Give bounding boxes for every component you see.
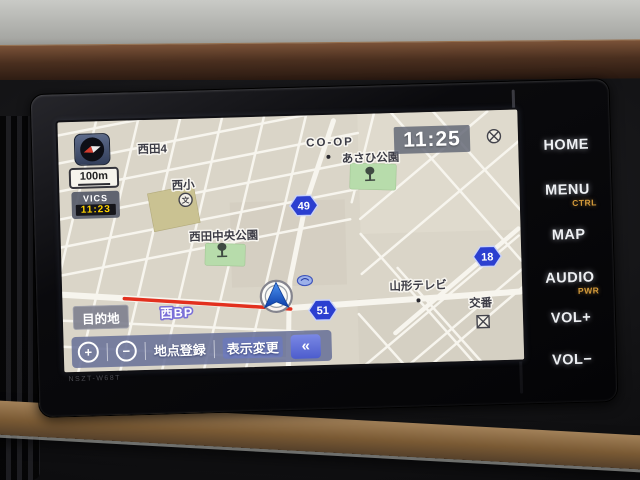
change-display-button[interactable]: 表示変更: [222, 336, 283, 359]
school-icon: 文: [179, 193, 192, 206]
volume-down-button-label: VOL−: [552, 352, 593, 369]
toolbar-divider: [107, 343, 109, 361]
poi-oval-icon: [297, 275, 312, 285]
volume-down-button[interactable]: VOL−: [530, 350, 614, 369]
map-block-shade: [230, 199, 347, 287]
compass-orientation-button[interactable]: [74, 133, 111, 166]
map-label-nishi-elementary: 西小: [171, 178, 195, 193]
navigation-head-unit: 文 49: [30, 78, 619, 418]
navigation-touchscreen[interactable]: 文 49: [55, 107, 526, 374]
wood-trim-top: [0, 39, 640, 84]
audio-button-sublabel: PWR: [528, 285, 612, 297]
menu-button-sublabel: CTRL: [526, 197, 610, 209]
menu-button[interactable]: MENU CTRL: [525, 180, 610, 209]
map-scale-value: 100m: [78, 170, 111, 185]
zoom-in-button[interactable]: +: [78, 341, 100, 363]
svg-text:49: 49: [298, 200, 311, 212]
compass-dial: [80, 137, 105, 162]
vics-timestamp: 11:23: [76, 204, 116, 216]
map-block-shade: [357, 294, 524, 364]
asahi-park-area: [350, 163, 397, 190]
svg-text:51: 51: [316, 305, 329, 317]
toolbar-divider: [214, 340, 216, 358]
svg-text:18: 18: [481, 251, 494, 263]
car-dashboard-photo: 文 49: [0, 0, 640, 480]
police-station-icon: [487, 130, 500, 143]
koban-icon: [477, 315, 489, 327]
map-label-road-name: 西BP: [160, 306, 193, 321]
menu-button-label: MENU: [545, 182, 590, 199]
map-label-koban: 交番: [469, 295, 493, 310]
vehicle-position-marker: [260, 280, 292, 312]
audio-button-label: AUDIO: [545, 269, 595, 286]
map-button[interactable]: MAP: [527, 225, 611, 244]
vics-info-panel: VICS 11:23: [71, 191, 120, 219]
map-label-asahi-park: あさひ公園: [342, 150, 400, 166]
home-button-label: HOME: [543, 137, 589, 154]
compass-needle-icon: [83, 144, 101, 154]
toolbar-divider: [145, 342, 147, 360]
register-point-button[interactable]: 地点登録: [154, 339, 207, 359]
volume-up-button[interactable]: VOL+: [529, 308, 613, 327]
audio-button[interactable]: AUDIO PWR: [528, 268, 613, 297]
map-label-district: 西田4: [137, 142, 167, 156]
map-label-coop: CO-OP: [306, 136, 354, 149]
volume-up-button-label: VOL+: [551, 310, 592, 327]
home-button[interactable]: HOME: [524, 135, 608, 154]
unit-model-label: NSZT-W68T: [68, 375, 121, 383]
vics-label: VICS: [71, 193, 119, 204]
map-scale-button[interactable]: 100m: [69, 167, 120, 189]
svg-text:文: 文: [182, 195, 190, 205]
clock-display: 11:25: [394, 125, 471, 154]
zoom-out-button[interactable]: −: [116, 340, 138, 362]
destination-button[interactable]: 目的地: [73, 304, 130, 330]
collapse-toolbar-button[interactable]: «: [290, 334, 321, 359]
map-button-label: MAP: [552, 227, 586, 244]
